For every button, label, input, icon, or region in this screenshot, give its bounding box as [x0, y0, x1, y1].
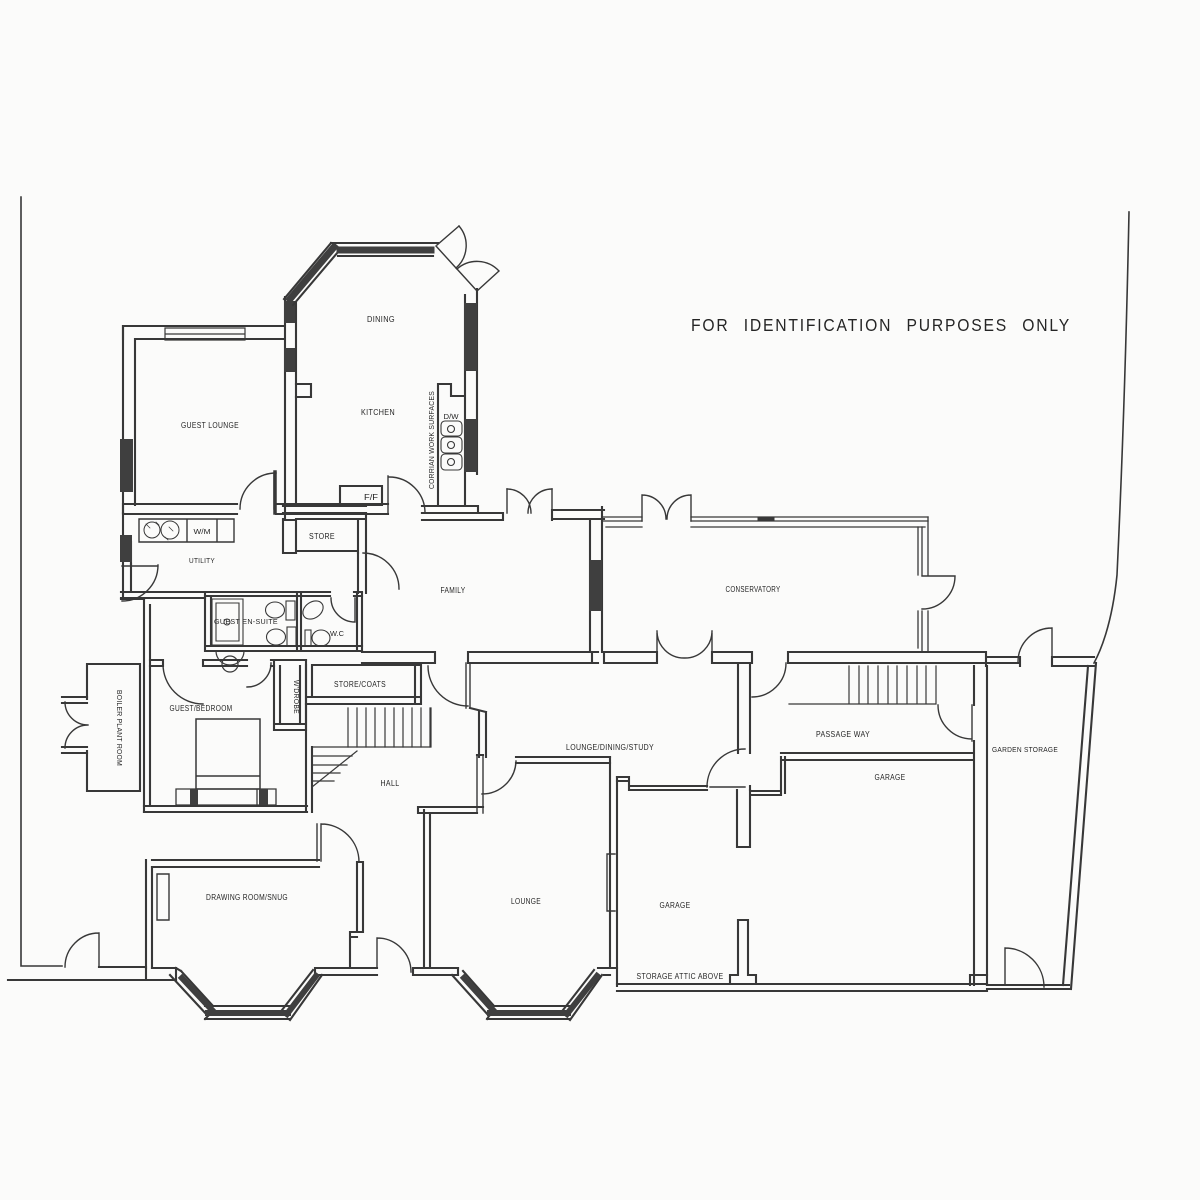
svg-text:DRAWING ROOM/SNUG: DRAWING ROOM/SNUG — [206, 893, 288, 902]
svg-text:CORRIAN WORK SURFACES: CORRIAN WORK SURFACES — [427, 391, 436, 489]
svg-text:DINING: DINING — [367, 315, 395, 324]
svg-text:GARDEN STORAGE: GARDEN STORAGE — [992, 745, 1058, 754]
svg-text:CONSERVATORY: CONSERVATORY — [726, 585, 781, 594]
svg-text:STORE/COATS: STORE/COATS — [334, 680, 386, 689]
svg-text:F/F: F/F — [364, 493, 378, 502]
svg-text:HALL: HALL — [381, 779, 400, 788]
svg-text:FOR IDENTIFICATION PURPOSES ON: FOR IDENTIFICATION PURPOSES ONLY — [691, 315, 1071, 335]
svg-text:FAMILY: FAMILY — [441, 586, 466, 595]
svg-text:D/W: D/W — [444, 412, 460, 421]
svg-text:STORAGE ATTIC ABOVE: STORAGE ATTIC ABOVE — [637, 972, 724, 981]
svg-text:GARAGE: GARAGE — [660, 901, 691, 910]
svg-text:PASSAGE WAY: PASSAGE WAY — [816, 730, 870, 739]
svg-text:LOUNGE/DINING/STUDY: LOUNGE/DINING/STUDY — [566, 743, 654, 752]
svg-text:W/M: W/M — [194, 529, 211, 536]
svg-text:UTILITY: UTILITY — [189, 556, 215, 565]
svg-text:BOILER PLANT ROOM: BOILER PLANT ROOM — [115, 690, 124, 766]
svg-text:GARAGE: GARAGE — [875, 773, 906, 782]
svg-text:GUEST/BEDROOM: GUEST/BEDROOM — [170, 704, 233, 713]
svg-text:GUEST LOUNGE: GUEST LOUNGE — [181, 421, 239, 430]
svg-text:STORE: STORE — [309, 532, 335, 541]
svg-text:W.C: W.C — [330, 629, 345, 638]
svg-text:LOUNGE: LOUNGE — [511, 897, 541, 906]
svg-text:KITCHEN: KITCHEN — [361, 408, 395, 417]
